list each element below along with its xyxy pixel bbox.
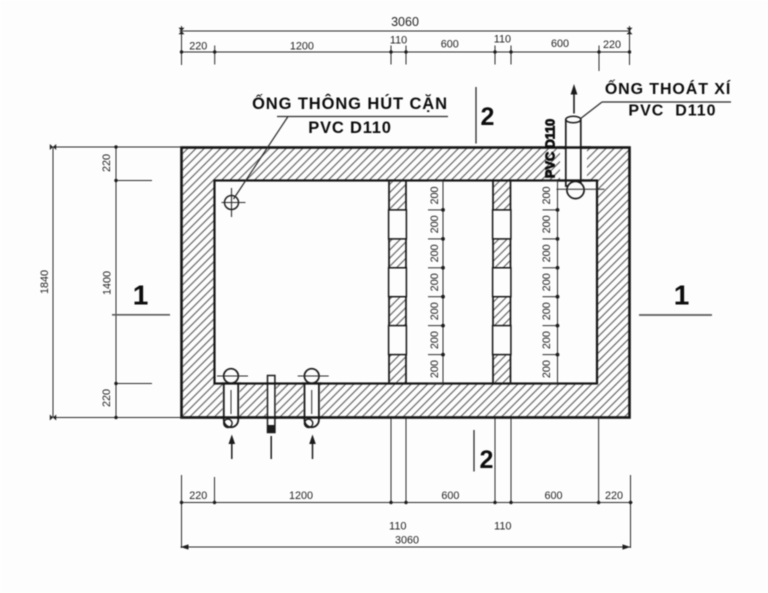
svg-text:2: 2 [480,446,494,474]
svg-text:200: 200 [429,331,441,349]
svg-text:3060: 3060 [391,15,419,29]
svg-text:200: 200 [429,360,441,378]
svg-text:600: 600 [544,490,562,502]
svg-text:200: 200 [429,215,441,233]
svg-text:3060: 3060 [395,535,419,547]
svg-text:200: 200 [429,302,441,320]
svg-text:1840: 1840 [39,270,51,294]
svg-text:110: 110 [494,34,511,46]
svg-text:1200: 1200 [289,490,313,502]
svg-text:ỐNG THÔNG HÚT CẶN: ỐNG THÔNG HÚT CẶN [252,93,448,113]
svg-text:200: 200 [541,302,553,320]
svg-text:600: 600 [551,38,569,50]
svg-text:PVC D110: PVC D110 [543,119,558,178]
svg-text:200: 200 [541,186,553,204]
svg-text:600: 600 [441,39,459,51]
svg-text:600: 600 [441,490,459,502]
svg-text:220: 220 [603,39,621,51]
svg-text:200: 200 [541,360,553,378]
svg-text:1: 1 [133,280,149,311]
svg-text:220: 220 [605,490,623,502]
svg-text:220: 220 [101,389,113,407]
svg-text:220: 220 [101,154,113,172]
svg-text:200: 200 [541,244,553,262]
svg-text:200: 200 [541,331,553,349]
svg-text:110: 110 [390,35,407,47]
svg-text:110: 110 [389,521,407,533]
svg-text:220: 220 [189,490,207,502]
svg-text:1400: 1400 [102,271,114,295]
svg-text:110: 110 [494,521,512,533]
svg-text:PVC D110: PVC D110 [628,103,716,120]
svg-text:200: 200 [429,273,441,291]
svg-text:1: 1 [674,280,690,311]
svg-text:ỐNG THOÁT XÍ: ỐNG THOÁT XÍ [605,78,731,98]
svg-text:200: 200 [541,215,553,233]
svg-text:220: 220 [189,41,207,53]
svg-text:PVC D110: PVC D110 [308,119,391,137]
svg-text:1200: 1200 [290,41,314,53]
svg-text:200: 200 [541,273,553,291]
svg-text:200: 200 [429,244,441,262]
svg-text:2: 2 [481,103,495,131]
svg-text:200: 200 [429,186,441,204]
